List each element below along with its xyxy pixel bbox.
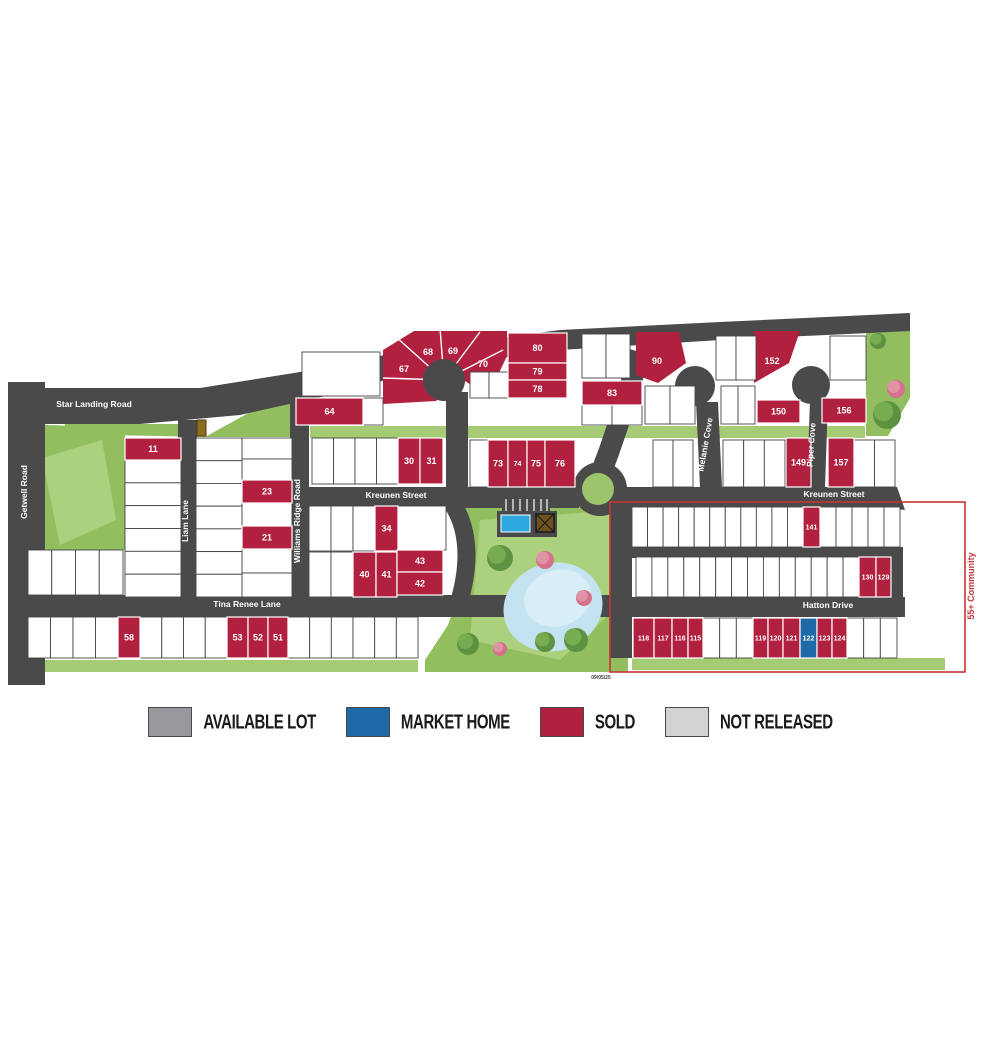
lot-30[interactable]: 30 — [398, 438, 420, 484]
lot-76[interactable]: 76 — [545, 440, 575, 487]
lot-79-label: 79 — [532, 367, 542, 377]
tree — [870, 333, 886, 349]
road-park-curve — [450, 500, 466, 606]
lot-121[interactable]: 121 — [783, 618, 800, 658]
lot-unlabeled — [721, 386, 738, 424]
date-stamp: 09/05/25 — [591, 675, 611, 681]
lot-unlabeled — [309, 552, 331, 597]
lot-unlabeled — [196, 506, 242, 529]
lot-unlabeled — [670, 386, 695, 424]
lot-157-label: 157 — [833, 458, 848, 468]
lot-unlabeled — [582, 405, 612, 425]
lot-122-label: 122 — [803, 636, 815, 643]
lot-121-label: 121 — [786, 636, 798, 643]
lot-unlabeled — [868, 507, 884, 547]
lot-78-label: 78 — [532, 384, 542, 394]
tree — [564, 628, 588, 652]
parking-strip — [502, 498, 550, 512]
lot-unlabeled — [716, 557, 732, 597]
street-label-hatton: Hatton Drive — [803, 600, 854, 610]
lot-unlabeled — [73, 617, 96, 658]
lot-67[interactable]: 67 — [399, 364, 409, 374]
lot-129-label: 129 — [878, 575, 890, 582]
lot-unlabeled — [334, 438, 356, 484]
flowering-tree — [887, 380, 905, 398]
lot-unlabeled — [242, 459, 292, 480]
lot-unlabeled — [355, 438, 377, 484]
street-label-kreunen_e: Kreunen Street — [804, 489, 865, 499]
street-label-tina: Tina Renee Lane — [213, 599, 281, 609]
lot-unlabeled — [736, 618, 753, 658]
lot-unlabeled — [632, 507, 648, 547]
lot-unlabeled — [196, 483, 242, 506]
lot-unlabeled — [764, 440, 785, 487]
lot-unlabeled — [852, 507, 868, 547]
lot-unlabeled — [787, 507, 803, 547]
lot-124-label: 124 — [834, 636, 846, 643]
lot-unlabeled — [470, 372, 489, 398]
lot-unlabeled — [756, 507, 772, 547]
lot-unlabeled — [673, 440, 693, 487]
road-cove-west — [446, 392, 468, 487]
lot-unlabeled — [363, 398, 383, 425]
lot-122[interactable]: 122 — [800, 618, 817, 658]
lot-unlabeled — [125, 574, 181, 597]
lot-73-label: 73 — [493, 459, 503, 469]
lot-51-label: 51 — [273, 633, 283, 643]
lot-unlabeled — [679, 507, 695, 547]
lot-unlabeled — [353, 506, 375, 551]
lot-34-label: 34 — [381, 524, 391, 534]
legend: AVAILABLE LOT MARKET HOME SOLD NOT RELEA… — [0, 707, 981, 737]
lot-11[interactable]: 11 — [125, 438, 181, 460]
lot-unlabeled — [820, 507, 836, 547]
lot-40-label: 40 — [359, 570, 369, 580]
lot-unlabeled — [668, 557, 684, 597]
lot-83[interactable]: 83 — [582, 381, 642, 405]
lot-unlabeled — [648, 507, 664, 547]
lot-unlabeled — [96, 617, 119, 658]
lot-117-label: 117 — [657, 636, 668, 643]
lot-21[interactable]: 21 — [242, 526, 292, 549]
legend-item-available: AVAILABLE LOT — [148, 707, 316, 737]
lot-unlabeled — [398, 506, 446, 550]
lot-unlabeled — [76, 550, 100, 595]
lot-unlabeled — [779, 557, 795, 597]
road-55-west — [610, 507, 632, 658]
lot-unlabeled — [377, 438, 399, 484]
lot-73[interactable]: 73 — [488, 440, 508, 487]
lot-64[interactable]: 64 — [296, 398, 363, 425]
lot-123-label: 123 — [819, 636, 831, 643]
lot-unlabeled — [196, 438, 242, 461]
lot-52-label: 52 — [253, 633, 263, 643]
lot-156-label: 156 — [836, 406, 851, 416]
lot-152[interactable]: 152 — [764, 356, 779, 366]
pool — [501, 515, 530, 532]
lot-141[interactable]: 141 — [803, 507, 820, 547]
lot-unlabeled — [242, 438, 292, 459]
lot-unlabeled — [703, 618, 720, 658]
lot-53-label: 53 — [232, 633, 242, 643]
lot-unlabeled — [125, 460, 181, 483]
lot-76-label: 76 — [555, 459, 565, 469]
lot-unlabeled — [694, 507, 710, 547]
lot-unlabeled — [875, 440, 896, 487]
lot-unlabeled — [847, 618, 864, 658]
road-55-internal — [625, 547, 903, 558]
lot-42[interactable]: 42 — [397, 572, 443, 595]
lot-unlabeled — [205, 617, 227, 658]
legend-label-market: MARKET HOME — [401, 711, 510, 734]
green-strip-mid — [310, 426, 865, 438]
flowering-tree — [493, 642, 507, 656]
lot-70-label: 70 — [478, 359, 488, 369]
lot-unlabeled — [331, 506, 353, 551]
legend-swatch-not-released — [665, 707, 709, 737]
street-label-kreunen_w: Kreunen Street — [366, 490, 427, 500]
lot-90[interactable]: 90 — [652, 356, 662, 366]
lot-unlabeled — [854, 440, 875, 487]
lot-30-label: 30 — [404, 456, 414, 466]
lot-unlabeled — [827, 557, 843, 597]
lot-unlabeled — [470, 440, 488, 487]
lot-120[interactable]: 120 — [768, 618, 783, 658]
lot-116-label: 116 — [674, 636, 685, 643]
site-plan-page: 1123213031344041434258535251646768697073… — [0, 0, 981, 1059]
legend-label-not-released: NOT RELEASED — [720, 711, 833, 734]
lot-unlabeled — [843, 557, 859, 597]
lot-unlabeled — [196, 529, 242, 552]
lot-157[interactable]: 157 — [828, 438, 854, 487]
lot-unlabeled — [700, 557, 716, 597]
lot-130[interactable]: 130 — [859, 557, 876, 597]
lot-23[interactable]: 23 — [242, 480, 292, 503]
lot-unlabeled — [710, 507, 726, 547]
lot-unlabeled — [288, 617, 310, 658]
flowering-tree — [576, 590, 592, 606]
lot-unlabeled — [312, 438, 334, 484]
lot-unlabeled — [884, 507, 900, 547]
lot-78[interactable]: 78 — [508, 380, 567, 398]
lot-150[interactable]: 150 — [757, 400, 800, 423]
lot-41[interactable]: 41 — [376, 552, 397, 597]
community-55-label: 55+ Community — [966, 552, 976, 619]
lot-unlabeled — [125, 529, 181, 552]
lot-90-label: 90 — [652, 356, 662, 366]
lot-58[interactable]: 58 — [118, 617, 140, 658]
lot-unlabeled — [51, 617, 74, 658]
lot-unlabeled — [732, 557, 748, 597]
lot-unlabeled — [302, 352, 380, 396]
lot-unlabeled — [396, 617, 418, 658]
lot-80[interactable]: 80 — [508, 333, 567, 363]
lot-69[interactable]: 69 — [448, 346, 458, 356]
lot-115-label: 115 — [690, 636, 701, 643]
lot-unlabeled — [653, 440, 673, 487]
lot-69-label: 69 — [448, 346, 458, 356]
culdesac-west-bulb-top — [423, 359, 465, 401]
tree — [535, 632, 555, 652]
lot-124[interactable]: 124 — [832, 618, 847, 658]
lot-unlabeled — [606, 334, 630, 378]
lot-118[interactable]: 118 — [633, 618, 654, 658]
lot-unlabeled — [331, 617, 353, 658]
lot-unlabeled — [162, 617, 184, 658]
lot-120-label: 120 — [770, 636, 782, 643]
lot-unlabeled — [684, 557, 700, 597]
lot-unlabeled — [196, 461, 242, 484]
lot-117[interactable]: 117 — [654, 618, 672, 658]
lot-118-label: 118 — [638, 636, 649, 643]
lot-unlabeled — [741, 507, 757, 547]
lot-unlabeled — [763, 557, 779, 597]
lot-unlabeled — [716, 336, 736, 380]
lot-43[interactable]: 43 — [397, 550, 443, 572]
legend-item-market: MARKET HOME — [346, 707, 510, 737]
lot-129[interactable]: 129 — [876, 557, 891, 597]
lot-unlabeled — [612, 405, 642, 425]
lot-unlabeled — [864, 618, 881, 658]
pavilion — [536, 514, 554, 532]
lot-51[interactable]: 51 — [268, 617, 288, 658]
legend-item-not-released: NOT RELEASED — [665, 707, 833, 737]
lot-79[interactable]: 79 — [508, 363, 567, 380]
lot-unlabeled — [310, 617, 332, 658]
street-label-star_landing: Star Landing Road — [56, 399, 132, 409]
lot-70[interactable]: 70 — [478, 359, 488, 369]
lot-41-label: 41 — [381, 570, 391, 580]
legend-label-available: AVAILABLE LOT — [203, 711, 316, 734]
lot-123[interactable]: 123 — [817, 618, 832, 658]
legend-swatch-market — [346, 707, 390, 737]
lot-unlabeled — [645, 386, 670, 424]
lot-unlabeled — [723, 440, 744, 487]
lot-unlabeled — [736, 336, 756, 380]
lot-119[interactable]: 119 — [753, 618, 768, 658]
flowering-tree — [536, 551, 554, 569]
lot-23-label: 23 — [262, 487, 272, 497]
lot-unlabeled — [28, 550, 52, 595]
lot-11-label: 11 — [148, 444, 158, 454]
legend-swatch-sold — [540, 707, 584, 737]
lot-67-label: 67 — [399, 364, 409, 374]
lot-unlabeled — [880, 618, 897, 658]
tree — [457, 633, 479, 655]
lot-unlabeled — [836, 507, 852, 547]
lot-unlabeled — [738, 386, 755, 424]
lot-58-label: 58 — [124, 633, 134, 643]
lot-unlabeled — [242, 549, 292, 573]
lot-unlabeled — [125, 506, 181, 529]
lot-unlabeled — [125, 551, 181, 574]
lot-83-label: 83 — [607, 388, 617, 398]
lot-74-label: 74 — [514, 461, 522, 468]
lot-unlabeled — [99, 550, 123, 595]
lot-43-label: 43 — [415, 556, 425, 566]
site-map: 1123213031344041434258535251646768697073… — [0, 0, 981, 700]
lot-68-label: 68 — [423, 347, 433, 357]
street-label-williams: Williams Ridge Road — [292, 479, 302, 563]
lot-unlabeled — [830, 336, 866, 380]
lot-53[interactable]: 53 — [227, 617, 248, 658]
lot-116[interactable]: 116 — [672, 618, 688, 658]
lot-unlabeled — [196, 552, 242, 575]
lot-unlabeled — [663, 507, 679, 547]
roundabout-island — [582, 473, 614, 505]
green-strip-55 — [632, 658, 945, 670]
lot-152-label: 152 — [764, 356, 779, 366]
lot-68[interactable]: 68 — [423, 347, 433, 357]
lot-unlabeled — [811, 557, 827, 597]
mailbox-kiosk — [197, 420, 206, 436]
lot-unlabeled — [331, 552, 353, 597]
lot-unlabeled — [125, 483, 181, 506]
lot-156[interactable]: 156 — [822, 398, 866, 423]
lot-80-label: 80 — [532, 343, 542, 353]
lot-unlabeled — [196, 574, 242, 597]
lot-52[interactable]: 52 — [248, 617, 268, 658]
lot-119-label: 119 — [755, 636, 766, 643]
lot-unlabeled — [489, 372, 508, 398]
lot-150-label: 150 — [771, 407, 786, 417]
lot-64-label: 64 — [324, 407, 334, 417]
lot-unlabeled — [772, 507, 788, 547]
lot-31[interactable]: 31 — [420, 438, 443, 484]
lot-74[interactable]: 74 — [508, 440, 527, 487]
lot-unlabeled — [242, 503, 292, 526]
lot-42-label: 42 — [415, 579, 425, 589]
green-strip-south — [28, 660, 418, 672]
tree — [487, 545, 513, 571]
lot-130-label: 130 — [862, 575, 874, 582]
lot-21-label: 21 — [262, 533, 272, 543]
lot-unlabeled — [582, 334, 606, 378]
lot-75-label: 75 — [531, 459, 541, 469]
street-label-getwell: Getwell Road — [19, 465, 29, 519]
lot-34[interactable]: 34 — [375, 506, 398, 551]
lot-unlabeled — [242, 573, 292, 597]
lot-unlabeled — [636, 557, 652, 597]
lot-unlabeled — [375, 617, 397, 658]
lot-115[interactable]: 115 — [688, 618, 703, 658]
legend-swatch-available — [148, 707, 192, 737]
legend-item-sold: SOLD — [540, 707, 635, 737]
lot-unlabeled — [725, 507, 741, 547]
lot-unlabeled — [795, 557, 811, 597]
lot-unlabeled — [52, 550, 76, 595]
lot-141-label: 141 — [806, 525, 818, 532]
lot-unlabeled — [720, 618, 737, 658]
lot-40[interactable]: 40 — [353, 552, 376, 597]
lot-unlabeled — [353, 617, 375, 658]
lot-75[interactable]: 75 — [527, 440, 545, 487]
lot-unlabeled — [140, 617, 162, 658]
lot-unlabeled — [309, 506, 331, 551]
road-hatton — [632, 597, 905, 617]
street-label-liam: Liam Lane — [180, 500, 190, 542]
lot-unlabeled — [744, 440, 765, 487]
lot-31-label: 31 — [426, 456, 436, 466]
lot-unlabeled — [748, 557, 764, 597]
tree — [873, 401, 901, 429]
lot-unlabeled — [184, 617, 206, 658]
lot-unlabeled — [652, 557, 668, 597]
lot-unlabeled — [28, 617, 51, 658]
legend-label-sold: SOLD — [595, 711, 635, 734]
